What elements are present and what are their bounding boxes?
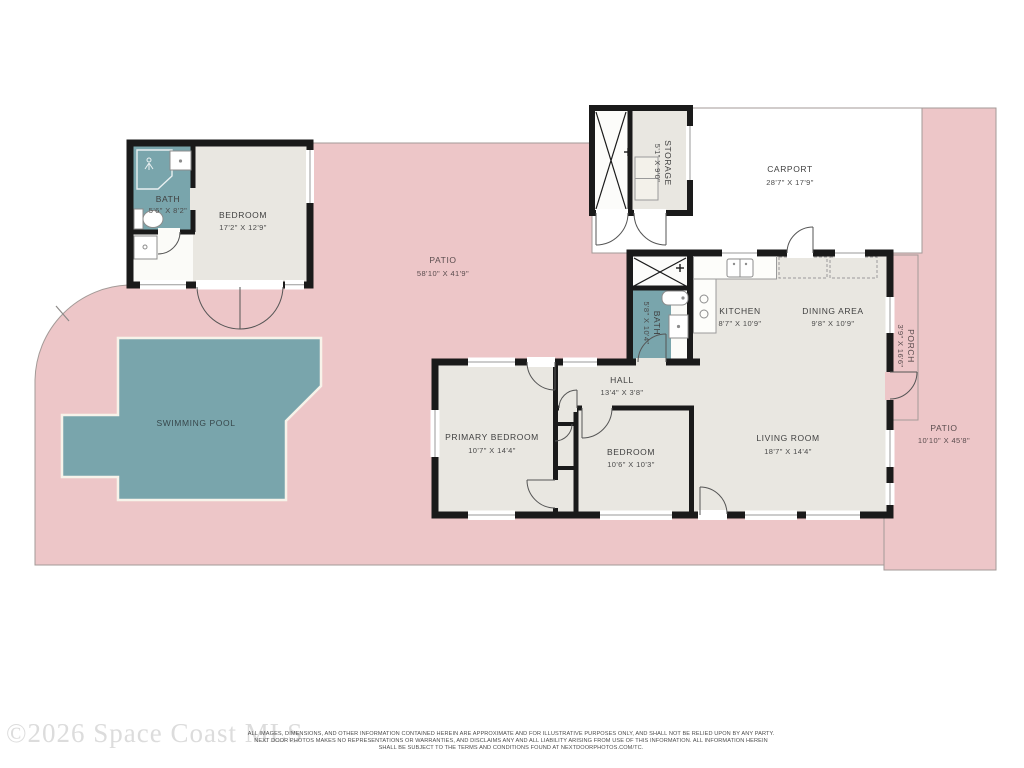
bath2-dims: 5'8" X 10'4" [642,301,651,344]
kitchen-dims: 8'7" X 10'9" [718,319,761,328]
pool-house-bath-doorway [158,228,180,236]
dining-dims: 9'8" X 10'9" [811,319,854,328]
living-room-dims: 18'7" X 14'4" [764,447,812,456]
patio-main-label: PATIO [429,255,456,265]
patio-right-dims: 10'10" X 45'8" [918,436,970,445]
hall-dims: 13'4" X 3'8" [600,388,643,397]
pool-house-bath-opening [190,188,196,210]
dining-label: DINING AREA [802,306,863,316]
pool-house-bath-sink [170,151,191,170]
patio-right-label: PATIO [930,423,957,433]
bath1-dims: 5'6" X 8'2" [149,206,187,215]
patio-main-dims: 58'10" X 41'9" [417,269,469,278]
carport-label: CARPORT [767,164,813,174]
storage-window [686,126,694,180]
west-wall-window [431,410,440,457]
floor-plan-page: BATH 5'6" X 8'2" BEDROOM 17'2" X 12'9" S… [0,0,1024,768]
disclaimer-line-3: SHALL BE SUBJECT TO THE TERMS AND CONDIT… [379,745,644,751]
primary-bedroom-dims: 10'7" X 14'4" [468,446,516,455]
bedroom1-dims: 17'2" X 12'9" [219,223,267,232]
bath2-sink [669,315,688,338]
bedroom1-label: BEDROOM [219,210,267,220]
storage-label: STORAGE [663,140,673,186]
kitchen-counter [694,257,777,280]
hall-label: HALL [610,375,634,385]
floor-plan-canvas: BATH 5'6" X 8'2" BEDROOM 17'2" X 12'9" S… [0,0,1024,768]
pool-label: SWIMMING POOL [156,418,235,428]
primary-bedroom-label: PRIMARY BEDROOM [445,432,539,442]
storage-dims: 5'1" X 9'0" [653,144,662,182]
bath2-tub [662,291,688,305]
bath2-label: BATH [652,311,662,335]
bedroom2-dims: 10'6" X 10'3" [607,460,655,469]
bedroom2-label: BEDROOM [607,447,655,457]
disclaimer-line-1: ALL IMAGES, DIMENSIONS, AND OTHER INFORM… [248,731,775,737]
bath1-label: BATH [156,194,180,204]
living-room-label: LIVING ROOM [756,433,819,443]
pool-house-utility-sink [134,236,157,259]
disclaimer-line-2: NEXT DOOR PHOTOS MAKES NO REPRESENTATION… [254,738,768,744]
kitchen-range [694,279,717,333]
porch-dims: 3'9" X 16'6" [896,324,905,367]
porch-label: PORCH [906,329,916,363]
carport-dims: 28'7" X 17'9" [766,178,814,187]
kitchen-label: KITCHEN [719,306,761,316]
